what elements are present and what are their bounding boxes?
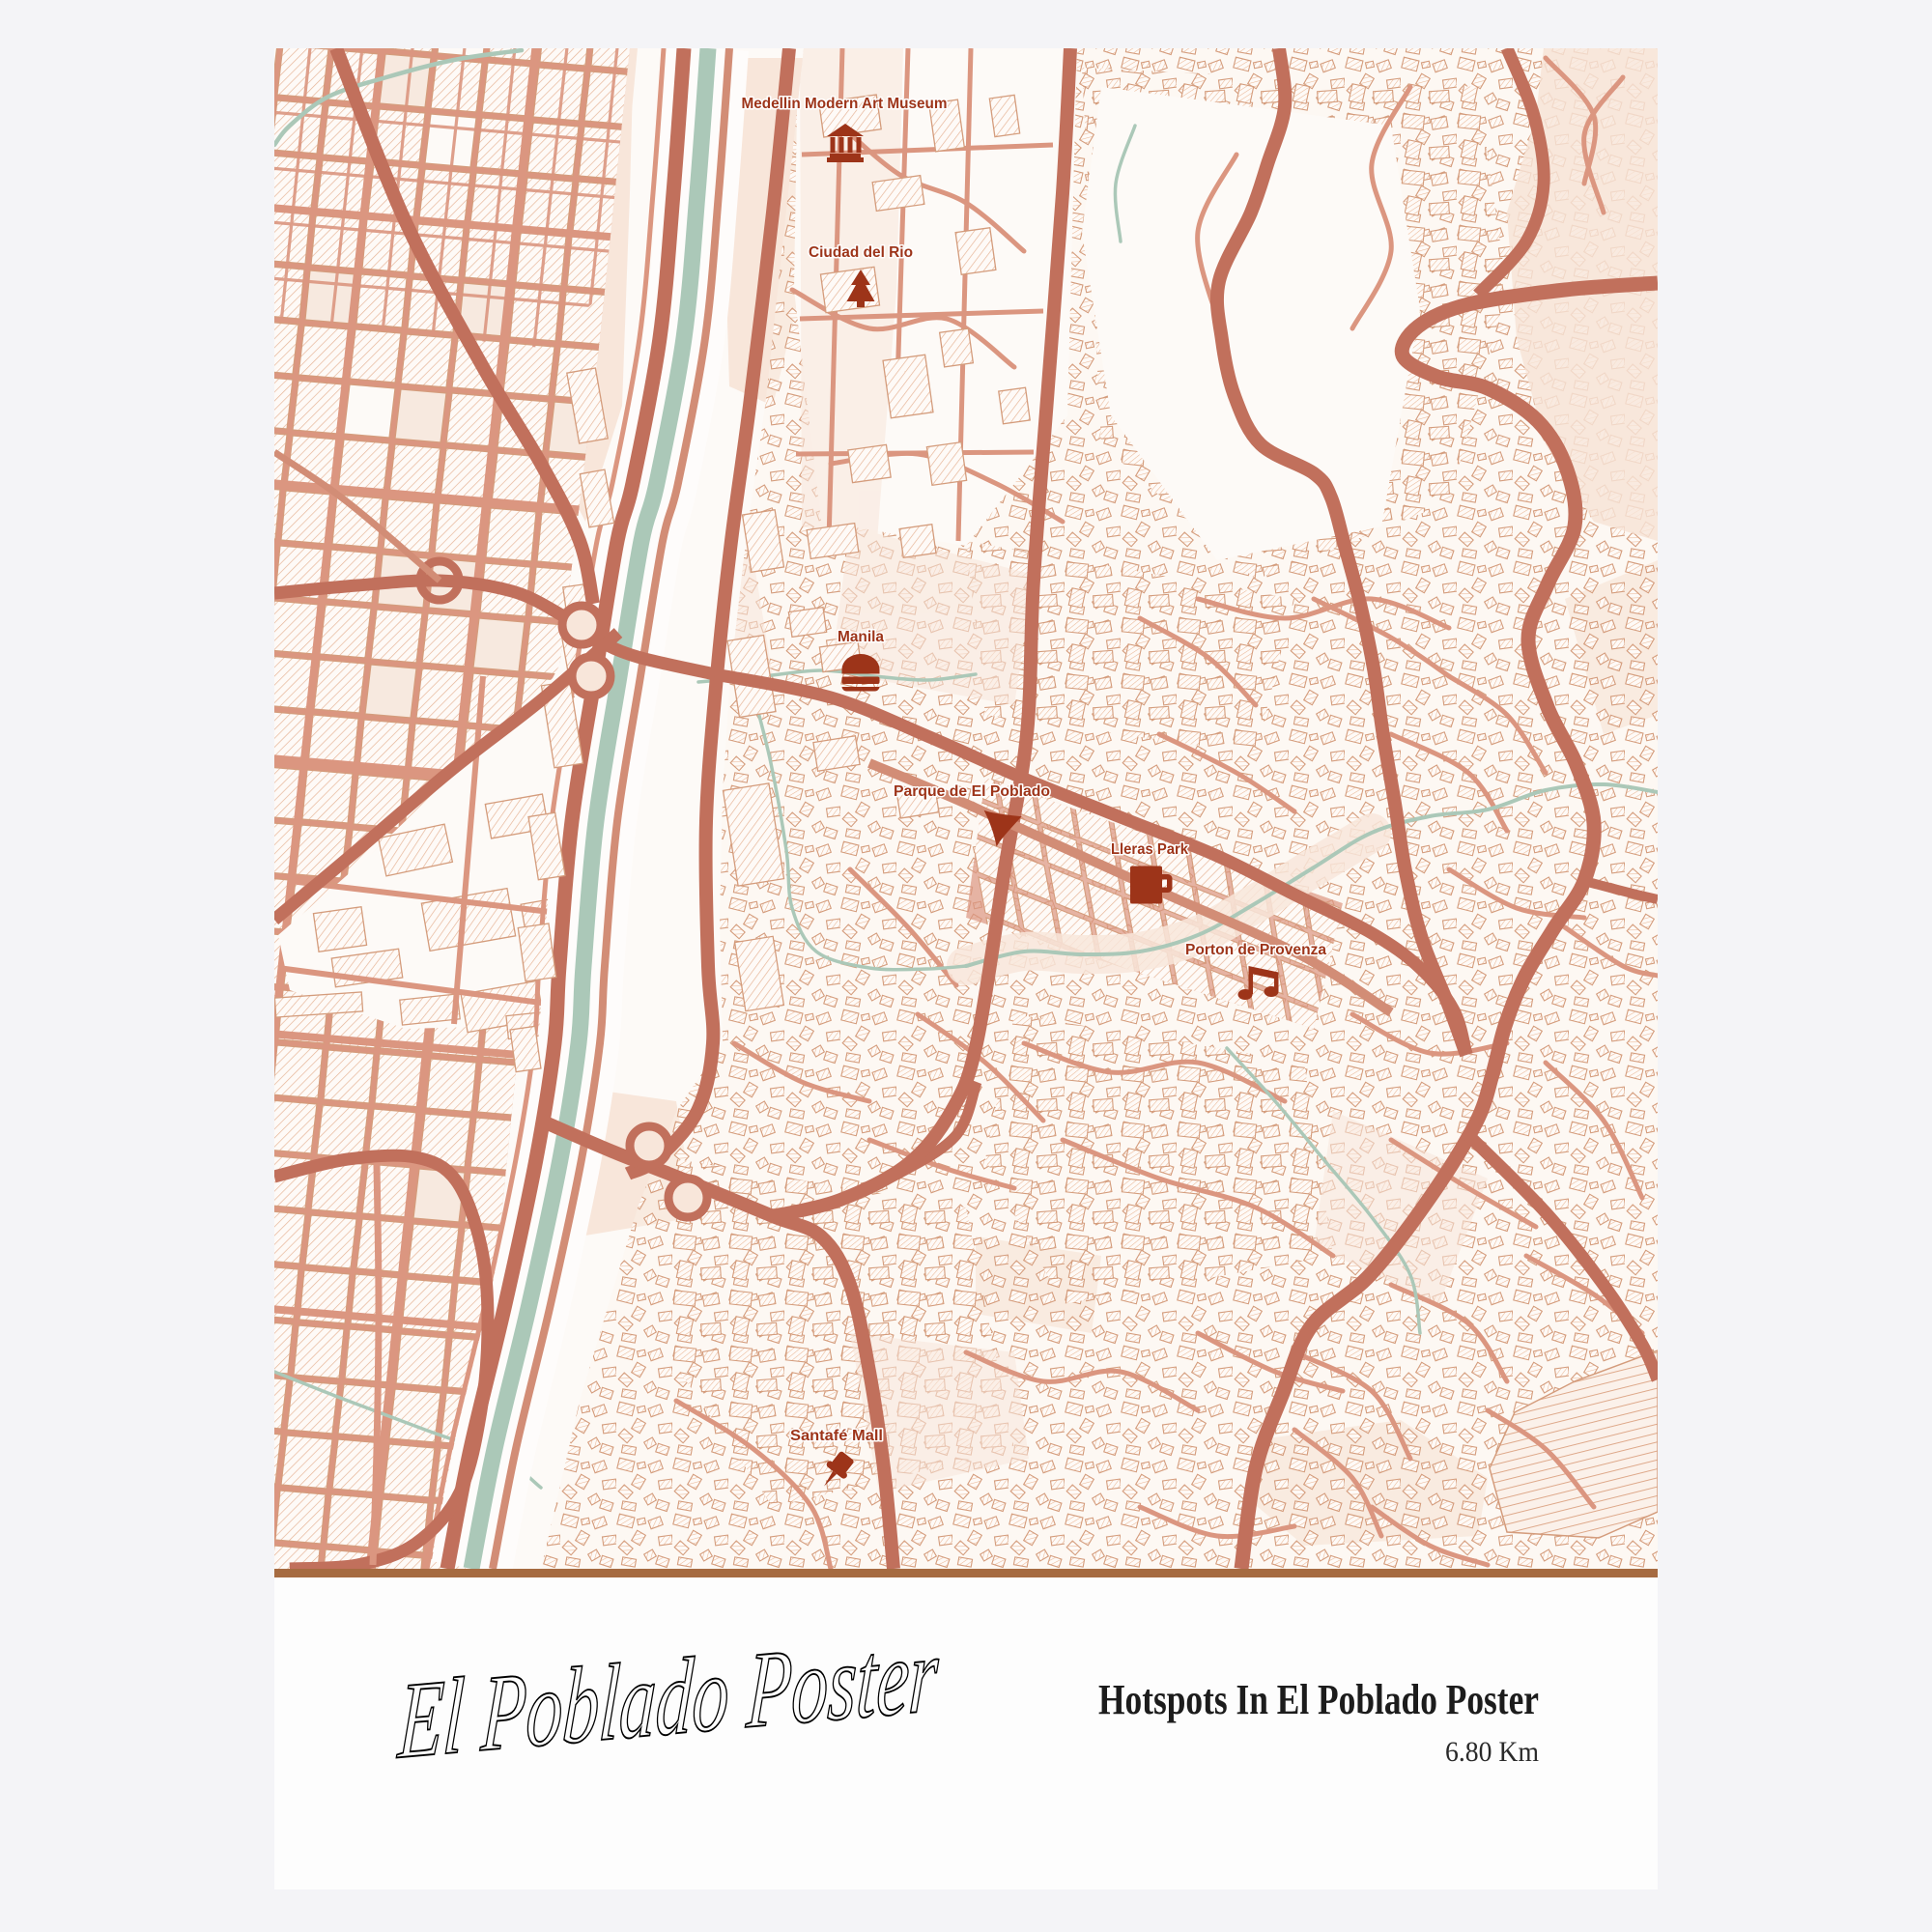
svg-text:6.80 Km: 6.80 Km <box>1445 1736 1539 1768</box>
svg-text:Manila: Manila <box>838 629 884 645</box>
svg-text:Hotspots In El Poblado Poster: Hotspots In El Poblado Poster <box>1098 1676 1539 1723</box>
svg-text:Medellin Modern Art Museum: Medellin Modern Art Museum <box>742 96 948 112</box>
svg-text:Ciudad del Rio: Ciudad del Rio <box>809 244 913 261</box>
svg-text:Parque de El Poblado: Parque de El Poblado <box>894 783 1050 800</box>
svg-text:Lleras Park: Lleras Park <box>1111 841 1188 858</box>
svg-text:Santafé Mall: Santafé Mall <box>790 1428 883 1444</box>
svg-text:Porton de Provenza: Porton de Provenza <box>1185 942 1326 958</box>
